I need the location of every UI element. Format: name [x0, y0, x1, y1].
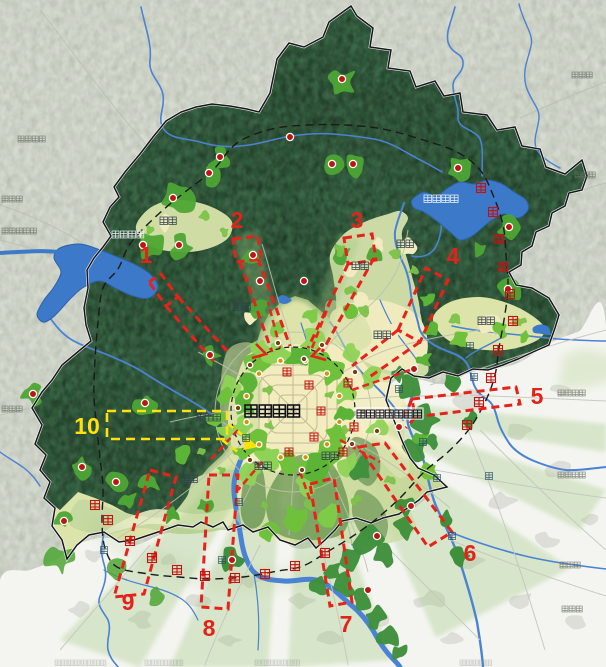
svg-text:4: 4	[447, 243, 460, 269]
svg-text:5: 5	[531, 383, 544, 409]
svg-text:2: 2	[231, 207, 244, 233]
svg-text:3: 3	[351, 207, 364, 233]
svg-text:10: 10	[74, 413, 100, 439]
svg-text:7: 7	[340, 611, 353, 637]
svg-text:8: 8	[203, 615, 216, 641]
svg-text:6: 6	[464, 540, 477, 566]
svg-text:1: 1	[140, 242, 153, 268]
svg-text:9: 9	[122, 589, 135, 615]
